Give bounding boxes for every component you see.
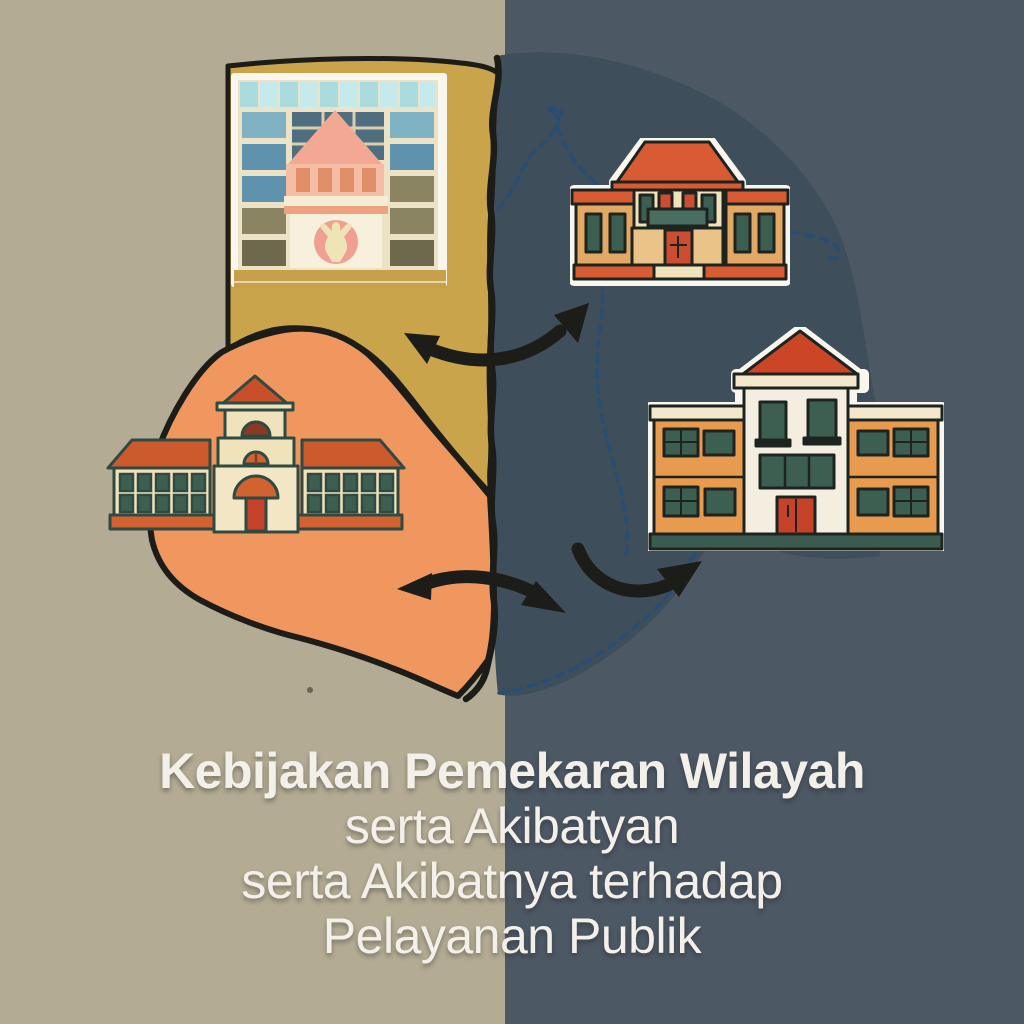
- base-strip: [650, 534, 942, 549]
- mustard-base: [234, 270, 446, 288]
- right-base-strip: [298, 515, 402, 529]
- cyan-window-band: [240, 82, 436, 107]
- entry-step: [654, 265, 704, 279]
- title-block: Kebijakan Pemekaran Wilayah serta Akibat…: [0, 744, 1024, 964]
- title-line-2: serta Akibatyan: [0, 799, 1024, 854]
- highrise-office-sticker: [230, 72, 450, 294]
- base-highlight: [234, 281, 446, 283]
- left-wing-roof: [108, 440, 210, 468]
- roof-band: [734, 374, 858, 388]
- illustration-canvas: Kebijakan Pemekaran Wilayah serta Akibat…: [0, 0, 1024, 1024]
- wide-window: [760, 455, 834, 488]
- name-sign: [648, 209, 707, 226]
- right-window-column: [390, 112, 434, 266]
- ledge: [284, 196, 388, 206]
- tower-roof: [743, 331, 857, 374]
- school-building: [106, 374, 406, 544]
- pink-trim: [284, 206, 388, 214]
- title-line-1: Kebijakan Pemekaran Wilayah: [0, 744, 1024, 799]
- right-wing-roof: [726, 190, 788, 204]
- title-line-3: serta Akibatnya terhadap: [0, 854, 1024, 909]
- left-window-column: [242, 112, 286, 266]
- entry-door: [246, 498, 266, 531]
- tower-roof: [221, 376, 289, 405]
- public-service-office-sticker: [648, 327, 944, 551]
- district-office-sticker: [570, 138, 790, 288]
- left-wing-cornice: [650, 406, 744, 420]
- left-base-strip: [110, 515, 214, 529]
- title-line-4: Pelayanan Publik: [0, 909, 1024, 964]
- tower-arch-window: [242, 422, 270, 436]
- left-wing-roof: [572, 190, 634, 204]
- right-wing-cornice: [848, 406, 942, 420]
- map-dot: [307, 687, 313, 693]
- right-wing-roof: [302, 440, 404, 468]
